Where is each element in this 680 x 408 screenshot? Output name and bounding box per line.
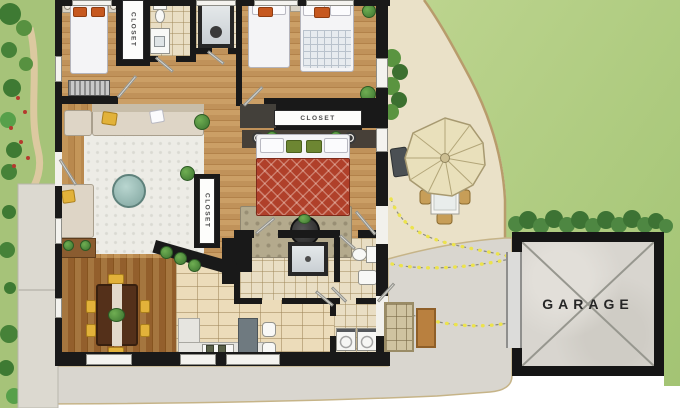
- wall: [228, 48, 236, 54]
- pillow: [91, 7, 105, 17]
- dining-chair: [86, 300, 96, 313]
- window: [72, 0, 112, 6]
- window: [306, 0, 354, 6]
- wall: [356, 298, 378, 304]
- plant: [194, 114, 210, 130]
- window: [376, 58, 388, 88]
- window: [254, 0, 298, 6]
- plant: [362, 4, 376, 18]
- plant: [160, 246, 173, 259]
- pillow: [314, 7, 330, 18]
- dining-chair: [140, 324, 150, 337]
- wall: [222, 238, 236, 284]
- plant: [188, 259, 201, 272]
- window: [86, 354, 132, 365]
- plant: [298, 214, 311, 224]
- stone-step: [384, 302, 414, 352]
- wall: [278, 230, 340, 238]
- wall: [334, 238, 340, 282]
- door-opening: [55, 152, 62, 186]
- armchair: [64, 110, 92, 136]
- kitchen-island: [238, 318, 258, 354]
- garage-label: GARAGE: [522, 242, 654, 366]
- plant: [63, 240, 74, 251]
- closet-label: CLOSET: [300, 115, 335, 122]
- comforter: [256, 158, 350, 216]
- window: [376, 128, 388, 152]
- closet-hall: CLOSET: [122, 0, 144, 60]
- wall: [62, 96, 118, 104]
- toilet-bowl: [352, 248, 367, 261]
- sofa-back: [92, 104, 204, 112]
- dining-chair: [86, 324, 96, 337]
- pillow: [306, 140, 322, 153]
- floor-plan: CLOSET CLOSET CLOSET GARAGE: [0, 0, 680, 408]
- plant: [174, 252, 187, 265]
- pillow: [149, 109, 165, 124]
- closet-master: CLOSET: [274, 110, 362, 126]
- wall: [360, 104, 376, 128]
- blanket: [303, 30, 351, 68]
- pillow: [61, 189, 76, 204]
- pillow: [324, 138, 348, 153]
- wall: [176, 56, 196, 62]
- shower-head: [210, 26, 222, 38]
- toilet-bowl: [155, 9, 165, 23]
- dining-chair: [108, 274, 124, 284]
- pillow: [73, 7, 87, 17]
- washer: [336, 328, 356, 351]
- window: [180, 354, 216, 365]
- bar-stool: [262, 322, 276, 337]
- wall: [274, 126, 362, 130]
- walkway: [18, 184, 58, 408]
- pillow: [101, 111, 118, 126]
- wall: [240, 298, 262, 304]
- plant: [180, 166, 195, 181]
- wall: [116, 60, 150, 66]
- centerpiece-plant: [108, 308, 125, 322]
- plant: [80, 240, 91, 251]
- wall: [240, 230, 254, 238]
- wall: [194, 244, 220, 248]
- wall: [215, 176, 220, 246]
- pillow: [286, 140, 302, 153]
- garage: GARAGE: [512, 232, 664, 376]
- window: [55, 218, 62, 244]
- wall: [236, 0, 242, 106]
- coffee-table: [112, 174, 146, 208]
- vanity-sink: [154, 36, 165, 47]
- wall: [330, 336, 336, 352]
- pillow: [260, 138, 284, 153]
- shower-drain: [305, 256, 311, 262]
- window: [55, 298, 62, 318]
- window: [196, 0, 236, 6]
- wall: [240, 238, 252, 272]
- bathroom-sink: [358, 270, 377, 285]
- window: [226, 354, 280, 365]
- closet-label: CLOSET: [130, 12, 137, 47]
- pillow: [258, 7, 273, 17]
- closet-living: CLOSET: [199, 178, 215, 244]
- dryer: [357, 328, 377, 351]
- garage-door: [506, 252, 522, 348]
- closet-shelf: [240, 104, 276, 128]
- shower: [198, 2, 234, 48]
- dresser: [68, 80, 110, 96]
- wall: [144, 0, 150, 62]
- umbrella-pole: [441, 154, 450, 163]
- dining-chair: [140, 300, 150, 313]
- door-opening: [376, 206, 388, 244]
- window: [55, 56, 62, 82]
- closet-label: CLOSET: [204, 193, 211, 228]
- door-mat: [416, 308, 436, 348]
